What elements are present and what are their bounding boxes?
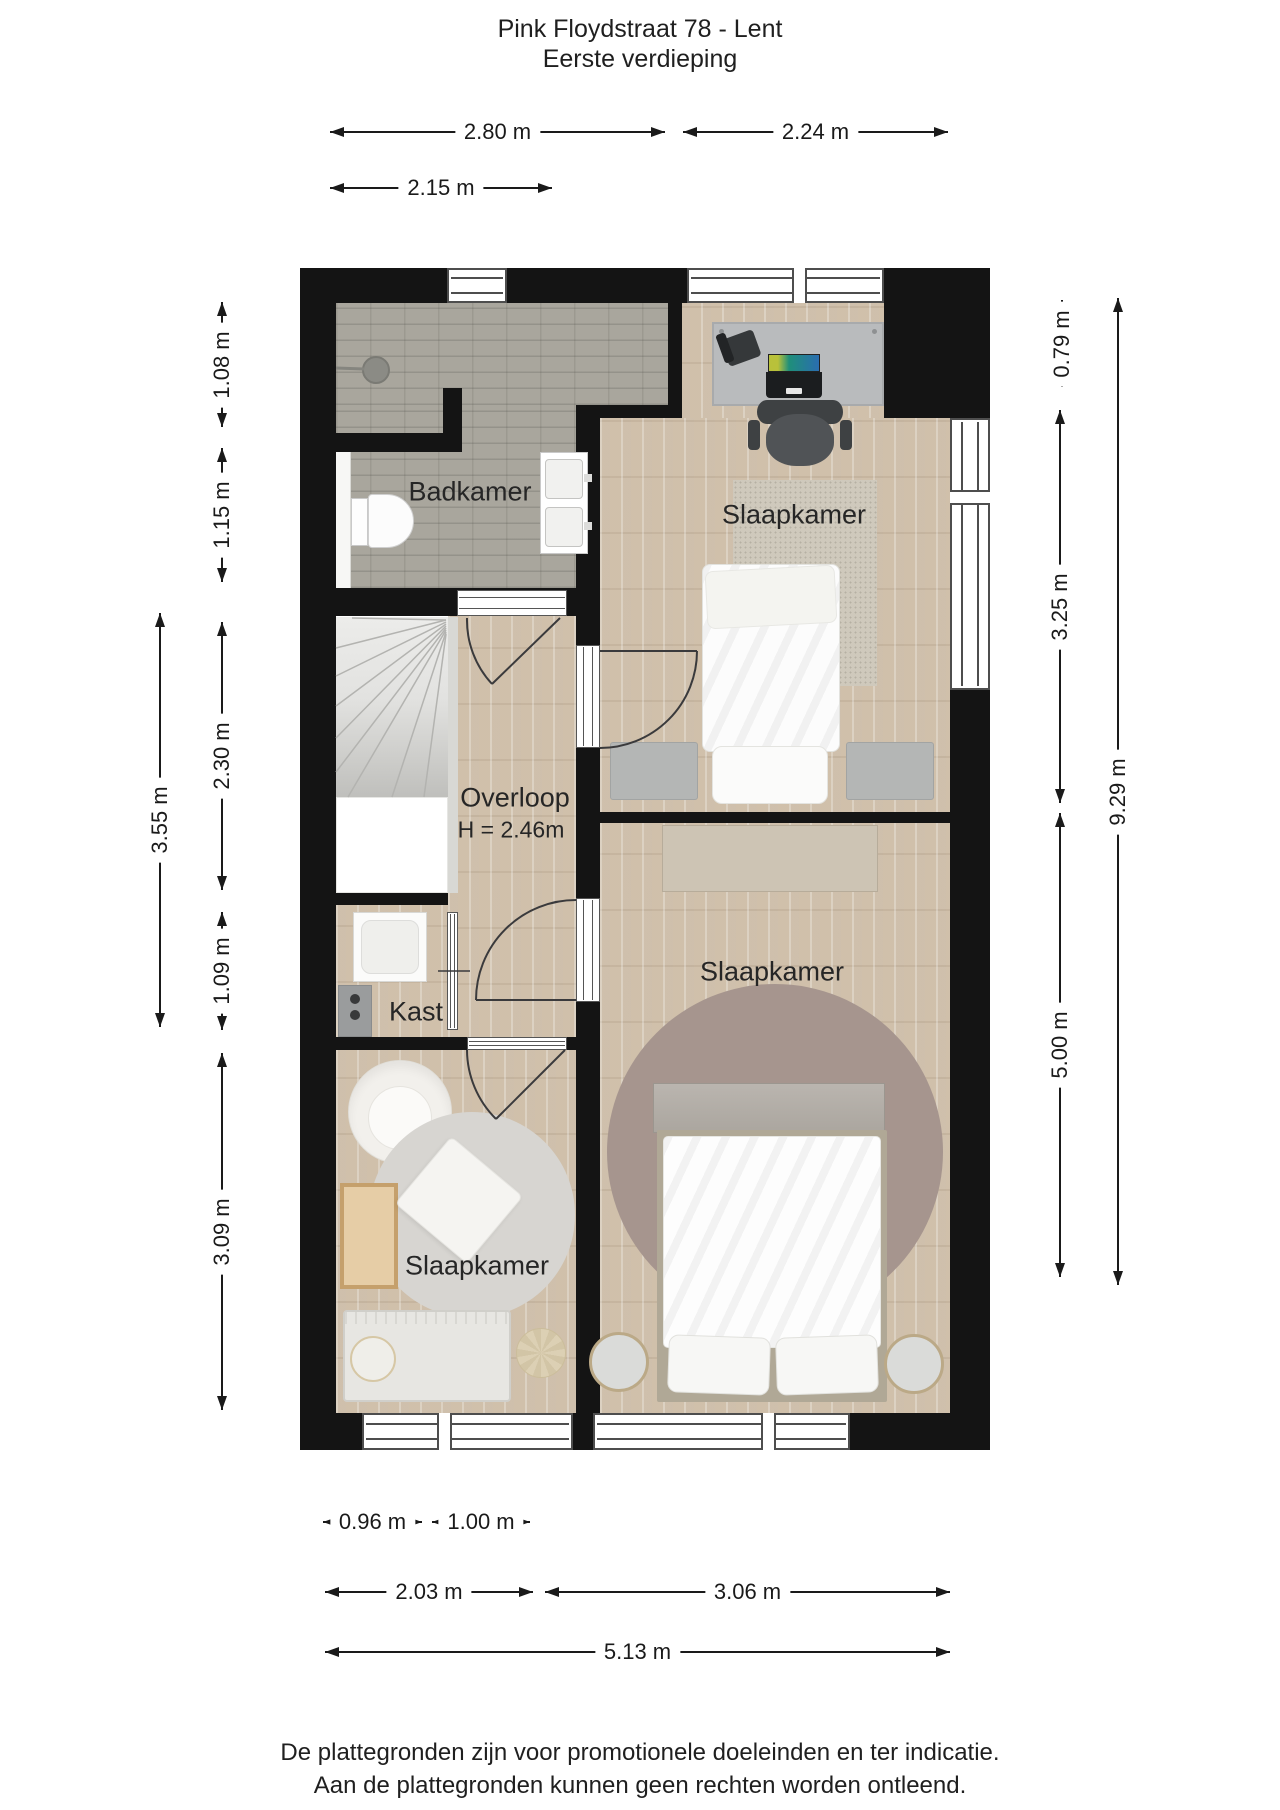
wall-closet-top [336, 893, 448, 905]
laptop-touchpad [786, 388, 802, 394]
sideboard [662, 825, 878, 892]
pouf [516, 1328, 566, 1378]
toilet-cistern [351, 498, 368, 546]
faucet-bottom [584, 522, 592, 530]
office-chair-arm-left [748, 420, 760, 450]
label-badkamer: Badkamer [408, 477, 531, 508]
bed-mid-pillow-right [775, 1334, 879, 1396]
sink-top [545, 459, 583, 499]
label-overloop: Overloop [460, 783, 570, 814]
door-bedroom-bottom [467, 1037, 567, 1050]
daybed-pillow [350, 1336, 396, 1382]
stairwell-void [336, 797, 448, 893]
door-closet [447, 912, 458, 1030]
plan-title-address: Pink Floydstraat 78 - Lent [0, 14, 1280, 44]
laptop-screen [768, 354, 820, 372]
wooden-tray [340, 1183, 398, 1289]
window-bottom-left [362, 1413, 573, 1450]
label-overloop-height: H = 2.46m [458, 817, 565, 844]
plan-title-floor: Eerste verdieping [0, 44, 1280, 74]
daybed-edge [345, 1312, 509, 1324]
wall-bathroom-right-upper [668, 303, 682, 418]
shower-screen [336, 452, 351, 588]
window-bathroom-top [447, 268, 507, 303]
side-table-left [589, 1332, 649, 1392]
disclaimer-line2: Aan de plattegronden kunnen geen rechten… [0, 1769, 1280, 1802]
window-bottom-right [593, 1413, 850, 1450]
floorplan-page: Pink Floydstraat 78 - Lent Eerste verdie… [0, 0, 1280, 1810]
label-slaapkamer-mid: Slaapkamer [700, 957, 844, 988]
bed-top-pillow [712, 746, 828, 804]
stair-railing [448, 617, 458, 893]
office-chair-seat [766, 414, 834, 466]
wall-left [300, 268, 336, 1450]
shower-head [362, 356, 390, 384]
label-kast: Kast [389, 997, 443, 1028]
door-bedroom-mid [576, 898, 600, 1002]
staircase [336, 617, 448, 797]
bed-top-fold [705, 565, 838, 630]
disclaimer-line1: De plattegronden zijn voor promotionele … [0, 1736, 1280, 1769]
faucet-top [584, 474, 592, 482]
wall-shower-vertical [443, 388, 462, 452]
utility-knob-bottom [350, 1010, 360, 1020]
wall-bedroom-divider [600, 812, 950, 823]
label-slaapkamer-bottom: Slaapkamer [405, 1251, 549, 1282]
washing-machine-lid [361, 920, 419, 974]
bed-mid-headboard [653, 1083, 885, 1133]
wall-corner-topright [884, 268, 990, 418]
door-bathroom [457, 590, 567, 616]
laptop-base [766, 372, 822, 398]
bed-mid-pillow-left [667, 1334, 771, 1396]
utility-knob-top [350, 994, 360, 1004]
desk-grommet-right [872, 329, 877, 334]
bathroom-floor-upper [336, 303, 668, 405]
door-bedroom-top [576, 645, 600, 748]
bed-mid-duvet [663, 1136, 881, 1348]
side-table-right [884, 1334, 944, 1394]
plan-title: Pink Floydstraat 78 - Lent Eerste verdie… [0, 14, 1280, 74]
disclaimer: De plattegronden zijn voor promotionele … [0, 1736, 1280, 1802]
window-bedroom-right [950, 418, 990, 690]
window-bedroom-top [687, 268, 884, 303]
nightstand-left [610, 742, 698, 800]
nightstand-right [846, 742, 934, 800]
sink-bottom [545, 507, 583, 547]
label-slaapkamer-top: Slaapkamer [722, 500, 866, 531]
office-chair-arm-right [840, 420, 852, 450]
